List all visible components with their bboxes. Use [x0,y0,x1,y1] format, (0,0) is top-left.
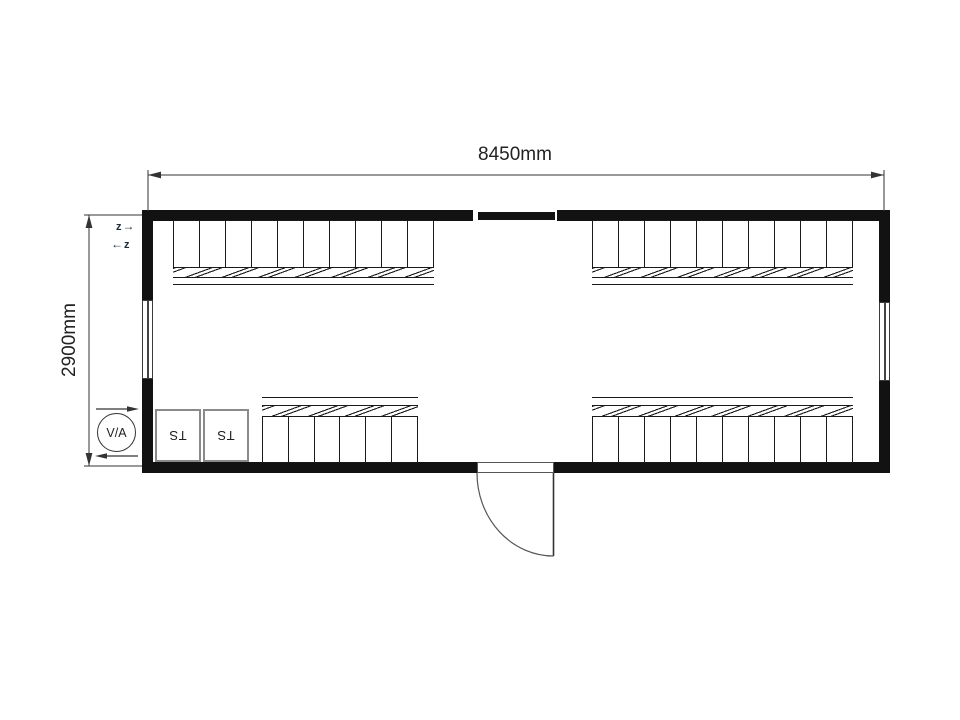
locker [645,220,671,268]
locker [366,416,392,463]
locker [278,220,304,268]
locker [392,416,418,463]
locker [645,416,671,463]
locker [619,416,645,463]
bench-top-left [173,268,434,278]
locker [200,220,226,268]
locker [173,220,200,268]
locker [408,220,434,268]
door-threshold [477,462,554,473]
width-dimension-label: 8450mm [478,144,552,166]
locker [827,416,853,463]
ventilation-unit-circle: V/A [97,413,136,452]
locker [723,220,749,268]
ts-box-2: TS [203,409,249,462]
locker [801,416,827,463]
locker [592,220,619,268]
locker-group-bottom-left [262,416,418,463]
locker [252,220,278,268]
ts-box-1-label: TS [169,428,187,443]
locker [749,416,775,463]
ventilation-unit-label: V/A [106,426,126,440]
locker [330,220,356,268]
left-wall-window [142,300,153,379]
locker [289,416,315,463]
locker [775,220,801,268]
bench-edge-top-left [173,284,434,285]
door-swing [477,473,554,556]
locker [723,416,749,463]
locker [315,416,341,463]
floor-plan-canvas: TS TS V/A z→ ←z [0,0,960,720]
width-dimension [148,170,884,211]
z-label: z [116,222,122,233]
right-wall-window [879,302,890,381]
extract-air-symbol: ←z [111,239,130,251]
locker [671,220,697,268]
bench-top-right [592,268,853,278]
ts-box-2-label: TS [217,428,235,443]
bench-edge-bottom-left [262,397,418,398]
airflow-arrow-in [96,406,139,412]
locker [340,416,366,463]
locker [356,220,382,268]
locker [827,220,853,268]
top-wall-window [478,212,555,220]
z-label: z [124,240,130,251]
arrow-left-icon: ← [111,238,123,250]
supply-air-symbol: z→ [116,221,135,233]
locker [775,416,801,463]
locker [382,220,408,268]
locker [749,220,775,268]
locker [671,416,697,463]
airflow-arrow-out [95,453,138,459]
locker [619,220,645,268]
locker-group-top-left [173,220,434,268]
locker [801,220,827,268]
locker [697,416,723,463]
locker [304,220,330,268]
arrow-right-icon: → [123,220,135,232]
bench-edge-bottom-right [592,397,853,398]
locker [262,416,289,463]
locker [697,220,723,268]
height-dimension-label: 2900mm [59,303,81,377]
bench-edge-top-right [592,284,853,285]
locker [592,416,619,463]
ts-box-1: TS [155,409,201,462]
bench-bottom-left [262,405,418,416]
locker-group-top-right [592,220,853,268]
locker [226,220,252,268]
locker-group-bottom-right [592,416,853,463]
bench-bottom-right [592,405,853,416]
